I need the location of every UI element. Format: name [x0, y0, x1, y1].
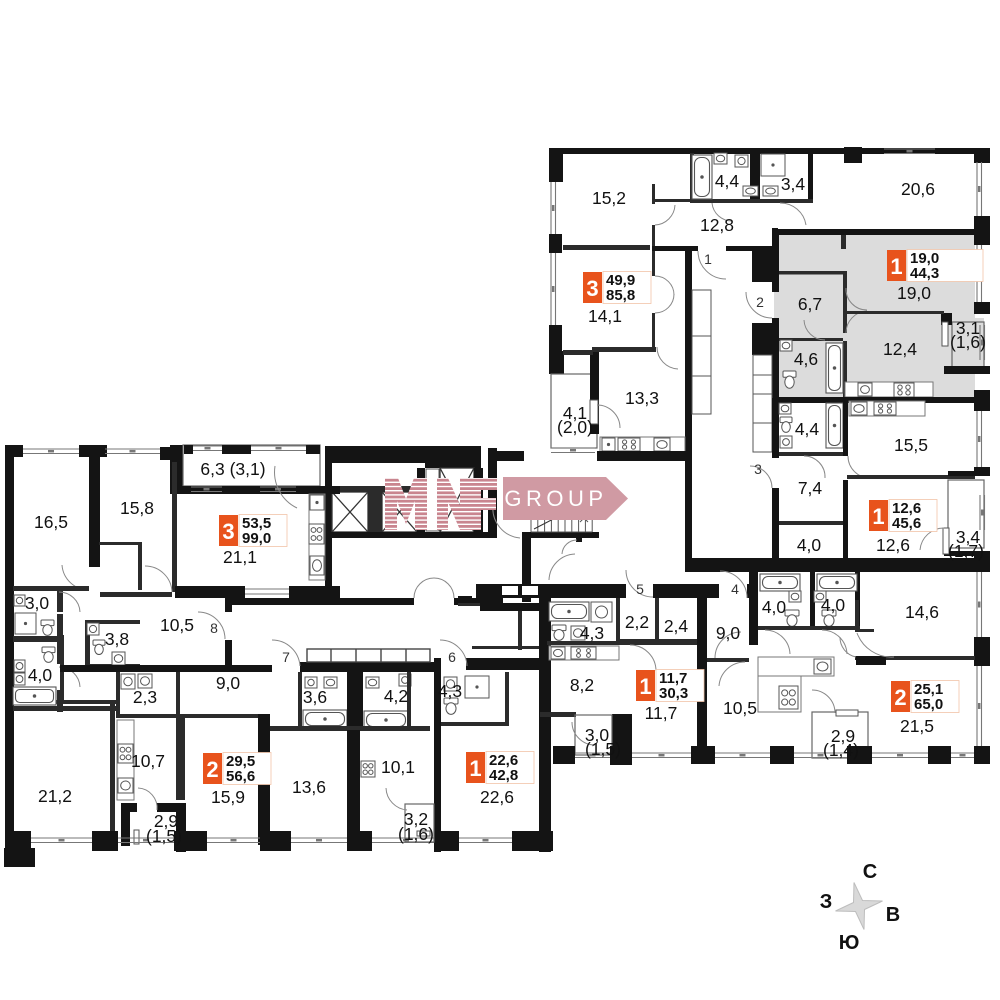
svg-text:12,4: 12,4 [883, 339, 917, 359]
svg-text:44,3: 44,3 [910, 265, 939, 282]
svg-text:30,3: 30,3 [659, 685, 688, 702]
svg-text:9,0: 9,0 [216, 673, 241, 693]
svg-text:(1,5): (1,5) [585, 739, 621, 759]
svg-text:21,1: 21,1 [223, 547, 257, 567]
svg-text:4,4: 4,4 [795, 419, 820, 439]
svg-text:21,5: 21,5 [900, 716, 934, 736]
svg-text:14,6: 14,6 [905, 602, 939, 622]
svg-text:3: 3 [222, 519, 234, 544]
svg-text:85,8: 85,8 [606, 287, 635, 304]
svg-text:7,4: 7,4 [798, 478, 823, 498]
svg-text:2,2: 2,2 [625, 612, 649, 632]
svg-text:13,6: 13,6 [292, 777, 326, 797]
svg-text:1: 1 [704, 251, 712, 267]
svg-text:(1,6): (1,6) [398, 824, 434, 844]
svg-text:12,8: 12,8 [700, 215, 734, 235]
svg-text:12,6: 12,6 [876, 535, 910, 555]
svg-text:2: 2 [206, 757, 218, 782]
svg-text:3,6: 3,6 [303, 687, 327, 707]
svg-text:4,4: 4,4 [715, 171, 740, 191]
svg-text:2,3: 2,3 [133, 687, 157, 707]
svg-text:1: 1 [872, 504, 884, 529]
svg-text:2: 2 [756, 294, 764, 310]
svg-text:(1,5): (1,5) [146, 826, 182, 846]
svg-text:20,6: 20,6 [901, 179, 935, 199]
svg-text:99,0: 99,0 [242, 530, 271, 547]
svg-text:С: С [863, 861, 877, 883]
svg-text:4,0: 4,0 [797, 535, 822, 555]
svg-text:10,1: 10,1 [381, 757, 415, 777]
svg-text:6: 6 [448, 649, 456, 665]
svg-text:8,2: 8,2 [570, 675, 594, 695]
svg-text:3,4: 3,4 [781, 174, 806, 194]
svg-text:10,5: 10,5 [723, 698, 757, 718]
svg-text:6,7: 6,7 [798, 294, 822, 314]
svg-text:3: 3 [754, 461, 762, 477]
svg-text:19,0: 19,0 [897, 283, 931, 303]
svg-text:42,8: 42,8 [489, 767, 518, 784]
svg-text:15,2: 15,2 [592, 188, 626, 208]
svg-text:16,5: 16,5 [34, 512, 68, 532]
svg-text:1: 1 [890, 254, 902, 279]
svg-text:13,3: 13,3 [625, 388, 659, 408]
svg-text:10,5: 10,5 [160, 615, 194, 635]
svg-text:4,2: 4,2 [384, 686, 408, 706]
svg-text:В: В [886, 904, 900, 926]
svg-text:4,6: 4,6 [794, 349, 818, 369]
svg-text:56,6: 56,6 [226, 768, 255, 785]
svg-text:65,0: 65,0 [914, 696, 943, 713]
svg-text:З: З [820, 891, 833, 913]
svg-text:9,0: 9,0 [716, 623, 741, 643]
svg-text:1: 1 [469, 756, 481, 781]
svg-text:45,6: 45,6 [892, 515, 921, 532]
svg-text:8: 8 [210, 620, 218, 636]
svg-text:4,0: 4,0 [762, 597, 787, 617]
svg-text:Ю: Ю [839, 932, 860, 954]
svg-text:15,8: 15,8 [120, 498, 154, 518]
svg-text:15,5: 15,5 [894, 435, 928, 455]
svg-text:4,0: 4,0 [28, 665, 53, 685]
svg-text:2: 2 [894, 685, 906, 710]
svg-text:7: 7 [282, 649, 290, 665]
svg-text:15,9: 15,9 [211, 787, 245, 807]
svg-text:3: 3 [586, 276, 598, 301]
svg-text:3,0: 3,0 [25, 593, 50, 613]
svg-text:(1,4): (1,4) [823, 740, 859, 760]
svg-text:10,7: 10,7 [131, 751, 165, 771]
svg-text:(2,0): (2,0) [557, 417, 593, 437]
svg-text:5: 5 [636, 581, 644, 597]
svg-text:11,7: 11,7 [645, 703, 678, 723]
svg-text:GROUP: GROUP [504, 486, 607, 511]
svg-text:4: 4 [731, 581, 739, 597]
svg-text:4,3: 4,3 [580, 623, 604, 643]
svg-text:(1,7): (1,7) [948, 541, 984, 561]
svg-text:(1,6): (1,6) [950, 332, 986, 352]
svg-text:4,3: 4,3 [438, 681, 462, 701]
svg-text:3,8: 3,8 [105, 629, 129, 649]
svg-text:2,4: 2,4 [664, 616, 689, 636]
svg-text:6,3 (3,1): 6,3 (3,1) [200, 459, 265, 479]
svg-text:1: 1 [639, 674, 651, 699]
svg-text:21,2: 21,2 [38, 786, 72, 806]
svg-text:22,6: 22,6 [480, 787, 514, 807]
svg-text:14,1: 14,1 [588, 306, 622, 326]
svg-text:4,0: 4,0 [821, 595, 846, 615]
